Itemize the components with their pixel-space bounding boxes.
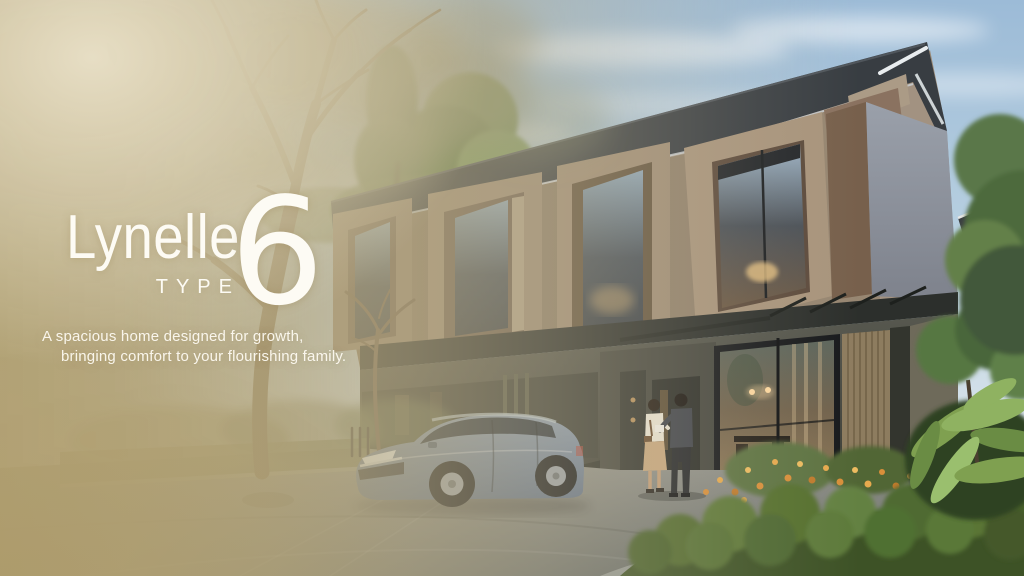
window-bay-middle [557,142,670,342]
marketing-hero-image: Lynelle TYPE 6 A spacious home designed … [0,0,1024,576]
scene-render [0,0,1024,576]
window-bay-main [684,112,832,330]
window-bay-far-left [333,198,412,352]
window-bay-left [428,172,542,348]
